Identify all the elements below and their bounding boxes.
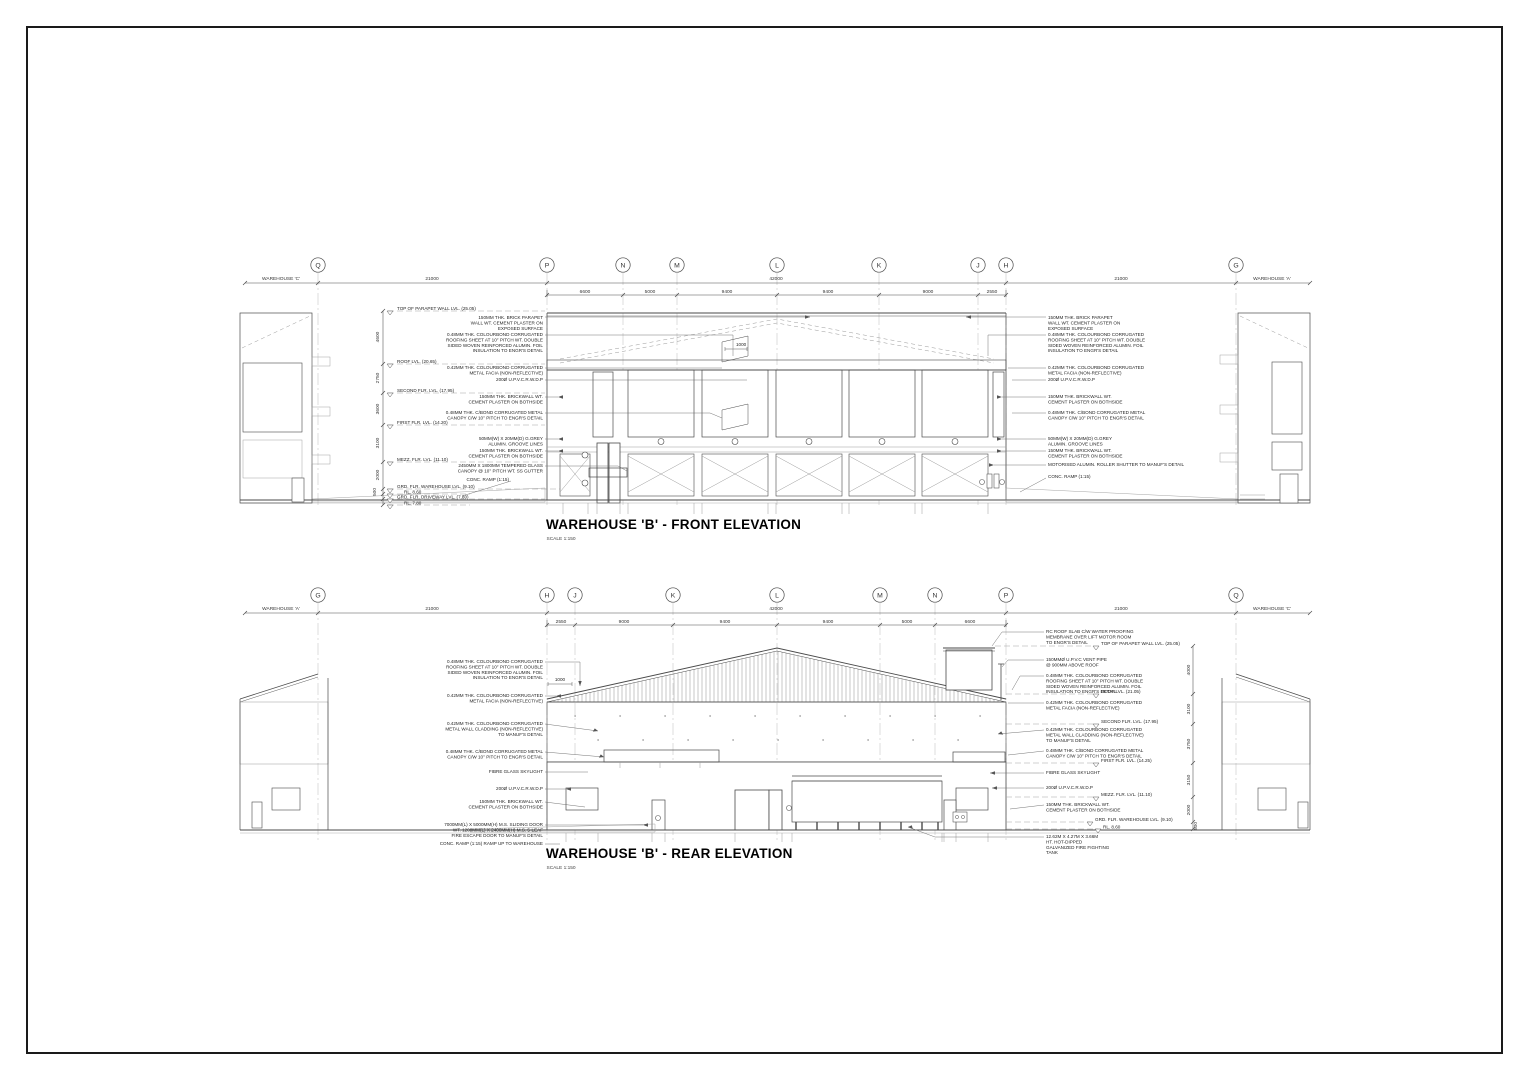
rear-building [240,648,1310,842]
dim-21000: 21000 [1114,276,1128,282]
note: 150MM THK. BRICKWALL WT.CEMENT PLASTER O… [1046,802,1120,812]
tag [980,480,985,485]
grid-label: Q [1233,593,1238,600]
elevation-drawing-svg: Q P N M L K J H G WAREHOUSE 'C' 21000 42… [0,0,1529,1080]
vert-dim: 3100 [375,437,381,448]
door-tag [787,806,792,811]
tag [1000,480,1005,485]
dim-21000: 21000 [425,606,439,612]
bay-dim: 9000 [923,289,934,295]
level-label: MEZZ. FLR. LVL. (11.10) [397,457,448,462]
brick-hatch [243,440,302,478]
bay-dim: 2550 [556,619,567,625]
rear-context-right-building [1222,674,1310,830]
note: 2450MM X 1800MM TEMPERED GLASSCANOPY @ 1… [458,463,544,473]
vert-dim: 2000 [375,469,381,480]
grid-label: L [775,593,779,600]
note: 0.42MM THK. COLOURBOND CORRUGATEDMETAL W… [1046,727,1144,743]
note: FIBRE GLASS SKYLIGHT [489,769,543,774]
note: 12.62M X 4.27M X 3.66MHT. HOT-DIPPEDGALV… [1046,834,1110,855]
bay-dim: 5000 [902,619,913,625]
context-label-left: WAREHOUSE 'A' [262,606,300,612]
note: 0.42MM THK. COLOURBOND CORRUGATEDMETAL F… [447,365,544,375]
tag [961,815,964,818]
door-tag [656,816,661,821]
context-label-left: WAREHOUSE 'C' [262,276,300,282]
note: 0.42MM THK. COLOURBOND CORRUGATEDMETAL F… [1046,700,1143,710]
level-label: FIRST FLR. LVL. (14.25) [1101,758,1152,763]
small-dim: 1000 [555,677,566,682]
note: 200Ø U.P.V.C.R.W.D.P [496,786,543,791]
grid-label: J [573,593,576,600]
rear-elevation-scale: SCALE 1:150 [547,865,576,871]
tag [955,815,958,818]
canopy-stub [1220,453,1238,462]
drawing-sheet: Q P N M L K J H G WAREHOUSE 'C' 21000 42… [0,0,1529,1080]
level-label: SECOND FLR. LVL. (17.95) [1101,719,1159,724]
note: 50MM(W) X 20MM(D) G.GREYALUMIN. GROOVE L… [1048,436,1112,446]
level-label: FIRST FLR. LVL. (14.20) [397,420,448,425]
front-elevation-scale: SCALE 1:150 [547,536,576,542]
grid-label: H [545,593,550,600]
entrance-door-leaf [597,443,608,503]
meter-box [953,812,967,822]
rear-context-left-building [240,674,328,830]
grid-label: K [671,593,676,600]
dim-42000: 42000 [769,276,783,282]
note: 150MM THK. BRICKWALL WT.CEMENT PLASTER O… [469,448,543,458]
vert-dim: 3600 [375,403,381,414]
note: 0.48MM THK. C/BOND CORRUGATED METALCANOP… [446,749,544,759]
escape-door [652,800,665,830]
grid-label: G [315,593,320,600]
note: 150MM THK. BRICK PARAPETWALL WT. CEMENT … [471,315,544,331]
bay-dim: 5000 [645,289,656,295]
rwdp-box [994,474,999,488]
rear-elevation: G H J K L M N P Q WAREHOUSE 'A' 21000 42… [240,588,1312,871]
note: CONC. RAMP (1:15) [466,477,509,482]
wall-cladding [547,702,1006,762]
front-facia-band [547,360,1006,370]
grid-label: P [545,263,550,270]
front-context-left-building [240,313,330,503]
note: 0.42MM THK. COLOURBOND CORRUGATEDMETAL F… [1048,365,1145,375]
level-label: GRD. FLR. WAREHOUSE LVL. (9.10) [397,484,475,489]
note: 0.48MM THK. C/BOND CORRUGATED METALCANOP… [1048,410,1146,420]
rear-canopy [604,750,719,762]
front-grid-bubbles: Q P N M L K J H G [311,258,1243,272]
note: 0.48MM THK. C/BOND CORRUGATED METALCANOP… [1046,748,1144,758]
level-label: GRD. FLR. WAREHOUSE LVL. (9.10) [1095,817,1173,822]
canopy-stub [1220,355,1238,364]
note: 0.48MM THK. COLOURBOND CORRUGATEDROOFING… [446,332,544,353]
note: CONC. RAMP (1:15) [1048,474,1091,479]
vert-dim: 4000 [1186,664,1192,675]
sheet-frame [27,27,1502,1053]
door-tag [582,452,588,458]
note: 50MM(W) X 20MM(D) G.GREYALUMIN. GROOVE L… [479,436,543,446]
note: 150MMØ U.P.V.C VENT PIPE@ 900MM ABOVE RO… [1046,657,1107,667]
level-label: SECOND FLR. LVL. (17.95) [397,388,455,393]
level-label: TOP OF PARAPET WALL LVL. (25.05) [1101,641,1180,646]
grid-label: L [775,263,779,270]
lift-motor-room [946,650,992,690]
window-tag [658,439,664,445]
window-tag [952,439,958,445]
skylight-dots [575,716,980,740]
bay-dim: 9400 [823,289,834,295]
rwdp-box [987,474,992,488]
level-label: GRD. FLR. DRIVEWAY LVL. (7.80) [397,495,469,500]
grid-label: K [877,263,882,270]
window-tag [732,439,738,445]
canopy-stub [312,455,330,464]
grid-label: M [877,593,883,600]
vert-dim: 500 [372,488,378,496]
note: 200Ø U.P.V.C.R.W.D.P [1046,785,1093,790]
small-dim: 1000 [736,342,747,347]
note: 0.42MM THK. COLOURBOND CORRUGATEDMETAL W… [445,721,543,737]
entrance-door-leaf [609,443,620,503]
grid-label: N [621,263,626,270]
note: 200Ø U.P.V.C.R.W.D.P [496,377,543,382]
note: 150MM THK. BRICKWALL WT.CEMENT PLASTER O… [469,394,543,404]
vert-dim: 3100 [1186,703,1192,714]
louvre-box [1258,788,1286,810]
rear-elevation-title: WAREHOUSE 'B' - REAR ELEVATION [546,846,793,861]
sliding-door-panel [769,790,782,830]
louvre-box [272,788,300,810]
front-dimension-lines: WAREHOUSE 'C' 21000 42000 21000 WAREHOUS… [243,276,1312,297]
bay-dim: 9400 [720,619,731,625]
context-label-right: WAREHOUSE 'C' [1253,606,1291,612]
window [243,363,302,432]
context-label-right: WAREHOUSE 'A' [1253,276,1291,282]
note: 0.48MM THK. COLOURBOND CORRUGATEDROOFING… [1048,332,1145,353]
note: CONC. RAMP (1:15) RAMP UP TO WAREHOUSE [440,841,543,846]
grid-label: J [976,263,979,270]
grid-label: P [1004,593,1009,600]
vert-dim: 2000 [1186,804,1192,815]
canopy-stub [312,407,330,416]
bay-dim: 6600 [580,289,591,295]
level-label: MEZZ. FLR. LVL. (11.10) [1101,792,1152,797]
grid-label: H [1004,263,1009,270]
rear-dimension-lines: WAREHOUSE 'A' 21000 42000 21000 WAREHOUS… [243,606,1312,627]
wall-cladding [1222,702,1310,764]
grid-label: G [1233,263,1238,270]
front-context-right-building [1220,313,1310,503]
rear-grid-bubbles: G H J K L M N P Q [311,588,1243,602]
door [292,478,304,502]
window [1272,362,1302,434]
note: 150MM THK. BRICKWALL WT.CEMENT PLASTER O… [469,799,543,809]
level-flags [387,311,393,509]
grid-label: Q [315,263,320,270]
note: 0.42MM THK. COLOURBOND CORRUGATEDMETAL F… [447,693,544,703]
vert-dim: 3150 [1186,774,1192,785]
level-label: RL. 7.80 [404,501,422,506]
door-tag [582,480,588,486]
wall-cladding [240,702,328,764]
front-elevation-title: WAREHOUSE 'B' - FRONT ELEVATION [546,517,801,532]
note: 150MM THK. BRICKWALL WT.CEMENT PLASTER O… [1048,448,1122,458]
level-label: ROOF LVL. (20.65) [397,359,437,364]
vert-dim: 3750 [1186,738,1192,749]
note: 0.48MM THK. COLOURBOND CORRUGATEDROOFING… [446,659,544,680]
note: FIBRE GLASS SKYLIGHT [1046,770,1100,775]
vert-dim: 2750 [375,372,381,383]
dim-21000: 21000 [425,276,439,282]
bay-dim: 9400 [722,289,733,295]
door [252,802,262,828]
canopy-stub [1220,405,1238,414]
rear-canopy [953,752,1005,762]
bay-dim: 9000 [619,619,630,625]
note: 200Ø U.P.V.C.R.W.D.P [1048,377,1095,382]
bay-dim: 6600 [965,619,976,625]
window [1272,442,1302,470]
grid-label: M [674,263,680,270]
door [1280,474,1298,503]
dim-42000: 42000 [769,606,783,612]
note: 7000MM(L) X 5000MM(H) M.S. SLIDING DOORW… [444,822,543,838]
window-tag [879,439,885,445]
note: 0.48MM THK. C/BOND CORRUGATED METALCANOP… [446,410,544,420]
front-elevation: Q P N M L K J H G WAREHOUSE 'C' 21000 42… [240,258,1312,542]
bay-dim: 2550 [987,289,998,295]
level-label: TOP OF PARAPET WALL LVL. (25.05) [397,306,476,311]
level-label: RL. 8.60 [1103,825,1121,830]
note: 150MM THK. BRICKWALL WT.CEMENT PLASTER O… [1048,394,1122,404]
gable-roof [547,651,1006,702]
dim-21000: 21000 [1114,606,1128,612]
note: 150MM THK. BRICK PARAPETWALL WT. CEMENT … [1048,315,1120,331]
note: MOTORISED ALUMIN. ROLLER SHUTTER TO MANU… [1048,462,1185,467]
vert-dim: 500 [1193,822,1199,830]
door [1298,802,1308,828]
window-tag [806,439,812,445]
grid-label: N [933,593,938,600]
vert-dim: 4600 [375,331,381,342]
canopy-stub [312,357,330,366]
bay-dim: 9400 [823,619,834,625]
